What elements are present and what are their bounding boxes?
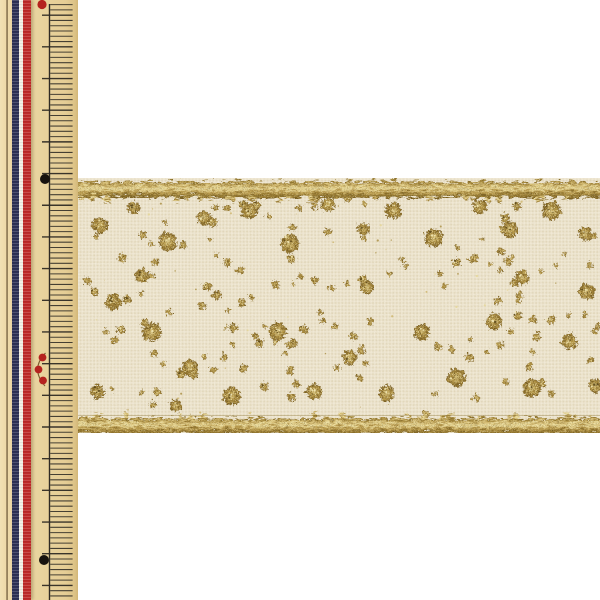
gold-glitter-dot-ribbon [78, 178, 600, 433]
ribbon-graphic [78, 178, 600, 433]
product-photo-scene [0, 0, 600, 600]
ruler-scale-marks [0, 0, 78, 600]
measuring-ruler [0, 0, 78, 600]
